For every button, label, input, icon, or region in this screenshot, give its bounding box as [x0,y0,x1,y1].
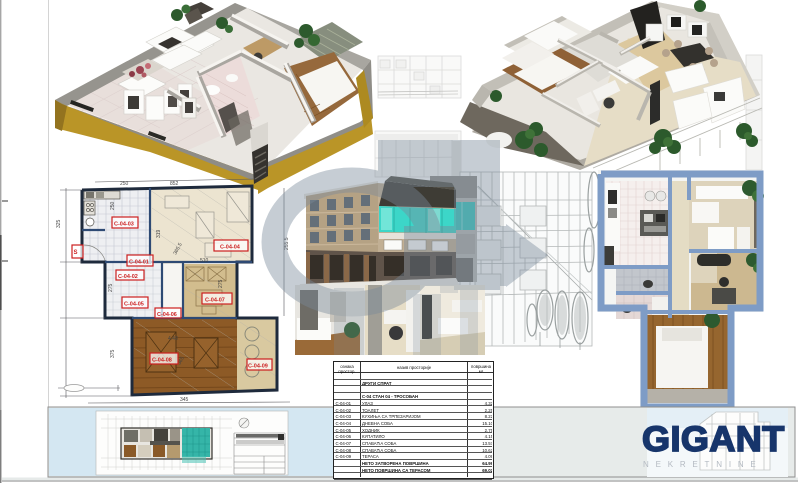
svg-text:510: 510 [200,258,209,264]
svg-text:C-04-09: C-04-09 [248,364,268,370]
svg-text:C-04-06: C-04-06 [157,312,177,318]
svg-text:275: 275 [218,279,224,288]
svg-text:C-04-02: C-04-02 [118,274,138,280]
svg-text:C-04-08: C-04-08 [152,358,172,364]
svg-text:375: 375 [110,349,116,358]
svg-text:C-04-03: C-04-03 [114,222,134,228]
svg-text:C-04-07: C-04-07 [205,298,225,304]
svg-text:250: 250 [120,181,129,187]
svg-text:345: 345 [180,397,189,403]
svg-text:275: 275 [108,283,114,292]
svg-text:319: 319 [156,229,162,238]
svg-text:4.48: 4.48 [168,336,178,342]
svg-text:325: 325 [56,219,62,228]
svg-text:C-04-05: C-04-05 [124,302,144,308]
svg-text:852: 852 [170,181,179,187]
svg-text:250: 250 [110,201,116,210]
svg-text:S: S [74,250,78,256]
svg-text:C-04-01: C-04-01 [129,260,149,266]
svg-text:C-04-04: C-04-04 [220,245,241,251]
